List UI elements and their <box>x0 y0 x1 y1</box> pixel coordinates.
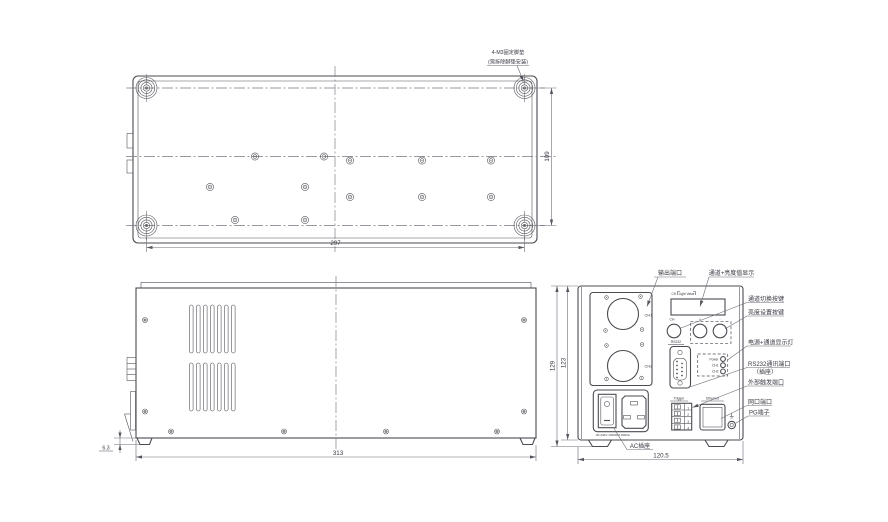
screw-hole <box>487 157 494 164</box>
trigger-pin-2: 2 <box>687 413 689 417</box>
drawing-svg: 4-M3固定脚垫 (需拆除脚垫安装) 297 109 <box>0 0 888 522</box>
screw-hole <box>206 183 213 190</box>
screw-hole <box>495 429 500 434</box>
trigger-pin-3: 3 <box>687 420 689 424</box>
screw-hole <box>418 193 425 200</box>
display-value-label: Light Value <box>679 292 695 296</box>
screw-hole <box>605 344 609 348</box>
display-area: CH Light Value <box>671 292 725 316</box>
screw-hole <box>640 328 644 332</box>
ch1-label: CH1 <box>645 313 654 318</box>
screw-hole <box>384 429 389 434</box>
output-subpanel: CH1 CH2 <box>590 293 653 386</box>
ch1-led <box>721 363 726 368</box>
callout-output-port: 输出端口 <box>658 269 682 277</box>
screw-hole <box>231 216 238 223</box>
rs232-pins <box>676 361 683 379</box>
screw-hole <box>169 429 174 434</box>
dim-top-width: 297 <box>330 240 341 247</box>
display-ch-label: CH <box>672 292 677 296</box>
top-view: 4-M3固定脚垫 (需拆除脚垫安装) 297 109 <box>126 48 558 252</box>
callouts: 输出端口 通道+亮度值显示 通道切换按键 亮度设置按键 电源+通道显示灯 RS2… <box>614 269 794 450</box>
foot <box>705 440 728 447</box>
brightness-down-button <box>713 324 727 338</box>
rear-view: CH1 CH2 CH Light Value CH + - RS232 <box>550 286 744 464</box>
screw-hole <box>301 183 308 190</box>
dim-top-depth: 109 <box>544 151 551 162</box>
led-power-label: Power <box>709 357 719 361</box>
screw-hole <box>522 409 527 414</box>
screw-hole <box>143 409 148 414</box>
trigger-pin-1: 1 <box>687 407 689 411</box>
channel-switch-button <box>667 324 681 338</box>
vent-slots <box>190 305 236 411</box>
callout-power-leds: 电源+通道显示灯 <box>748 339 794 347</box>
power-switch <box>598 394 616 427</box>
led-ch2-label: CH2 <box>712 369 719 373</box>
output-connector-ch2 <box>608 351 639 382</box>
callout-display: 通道+亮度值显示 <box>709 269 755 277</box>
callout-ac-socket: AC插座 <box>630 442 650 450</box>
screw-hole <box>640 376 644 380</box>
side-view: 6.3 313 <box>99 276 536 461</box>
dim-rear-height-outer: 129 <box>550 360 557 371</box>
screw-hole <box>282 429 287 434</box>
dim-rear-width: 120.5 <box>653 453 669 460</box>
brightness-down-label: - <box>719 318 720 322</box>
callout-external-trigger: 外部触发端口 <box>748 379 784 387</box>
callout-lan-port: 网口端口 <box>748 398 772 406</box>
screw-hole <box>604 329 608 333</box>
foot <box>589 440 612 447</box>
callout-pg-terminal: PG端子 <box>749 409 770 417</box>
engineering-drawing-page: 4-M3固定脚垫 (需拆除脚垫安装) 297 109 <box>0 0 888 522</box>
foot <box>520 438 535 445</box>
screw-hole <box>605 377 609 381</box>
dim-side-width: 313 <box>333 450 344 457</box>
side-protrusion <box>127 134 133 149</box>
screw-hole <box>639 295 643 299</box>
rating-text: 90-240V~50/60Hz 800VA <box>596 433 630 437</box>
screw-hole <box>522 318 527 323</box>
footpad-note-line2: (需拆除脚垫安装) <box>488 58 528 66</box>
screw-hole <box>346 193 353 200</box>
footpad-note-line1: 4-M3固定脚垫 <box>492 48 525 56</box>
trigger-pin-4: 4 <box>687 426 689 430</box>
side-protrusion <box>127 160 133 173</box>
screw-hole <box>605 296 609 300</box>
screw-hole <box>143 318 148 323</box>
pg-terminal <box>728 414 735 429</box>
output-connector-ch1 <box>608 299 639 330</box>
c14-socket <box>622 396 646 428</box>
foot <box>137 438 152 445</box>
screw-hole <box>487 193 494 200</box>
ch2-led <box>721 369 726 374</box>
dim-rear-height-body: 123 <box>560 357 567 368</box>
callout-brightness-set: 亮度设置按键 <box>748 309 784 317</box>
brightness-up-button <box>693 324 707 338</box>
callout-rs232-port-sub: （插座） <box>753 368 777 376</box>
rs232-connector: RS232 <box>668 340 691 388</box>
screw-hole <box>418 157 425 164</box>
trigger-label: Trigger <box>674 397 685 401</box>
callout-channel-switch: 通道切换按键 <box>748 295 784 303</box>
switch-off-symbol <box>604 401 609 406</box>
power-led <box>721 357 726 362</box>
callout-rs232-port: RS232通讯端口 <box>748 360 790 368</box>
screw-hole <box>346 157 353 164</box>
screw-hole <box>640 343 644 347</box>
ac-inlet-area: 90-240V~50/60Hz 800VA <box>593 390 648 437</box>
led-ch1-label: CH1 <box>712 363 719 367</box>
rs232-label: RS232 <box>671 340 681 344</box>
dim-foot-height: 6.3 <box>102 446 109 452</box>
panel-edge-protrusion <box>131 392 136 431</box>
display-window <box>671 299 725 315</box>
channel-button-label: CH <box>670 318 675 322</box>
ch2-label: CH2 <box>645 364 654 369</box>
screw-hole <box>301 216 308 223</box>
ethernet-port: Ethernet <box>700 397 725 431</box>
led-indicators: Power CH1 CH2 <box>698 354 728 376</box>
trigger-terminal: Trigger 1 2 3 4 <box>670 397 692 431</box>
